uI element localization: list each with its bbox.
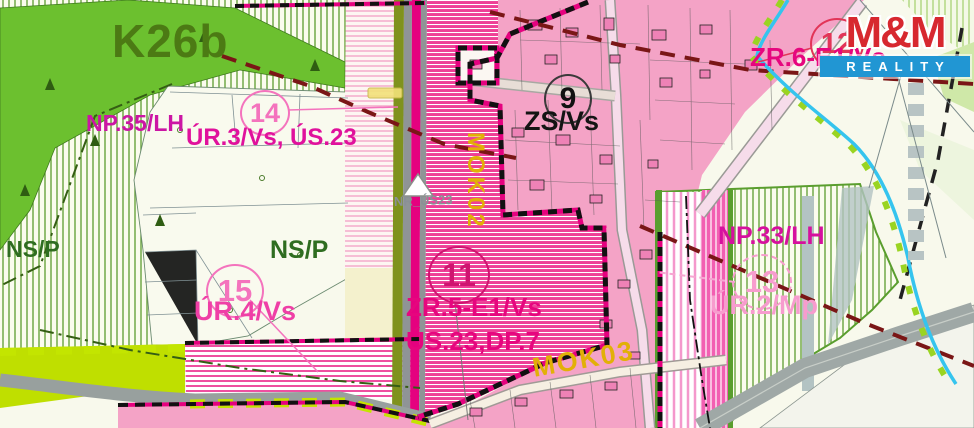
zone-label-np35: NP.35/LH (86, 112, 184, 135)
logo-tagline-bar: REALITY (820, 56, 970, 77)
logo-brand-text: M&M (820, 12, 970, 54)
zone-label-us23dp7: ÚS.23,DP.7 (406, 328, 540, 354)
zone-label-nsp-left: NS/P (6, 238, 60, 261)
zone-label-ur3: ÚR.3/Vs, ÚS.23 (186, 126, 357, 150)
pale-area (345, 266, 396, 345)
marker-label-nr-us23: NR_ÚS23 (394, 193, 453, 208)
zone-label-ur2: ÚR.2/Mp (710, 292, 818, 319)
zone-label-ur4: ÚR.4/Vs (194, 298, 296, 325)
corridor-olive-strip (392, 0, 404, 428)
pink-vert-stripe-band (662, 192, 702, 428)
zone-label-k26b: K26b (112, 18, 228, 64)
street-label-mok02: MOK02 (463, 132, 487, 230)
zone-label-zr5: ZR.5-E1/Vs (406, 294, 542, 320)
zone-label-np33: NP.33/LH (718, 224, 825, 249)
yellow-mark (368, 88, 402, 98)
zone-label-nsp-right: NS/P (270, 238, 328, 263)
zone-label-zsvs: ZS/Vs (524, 108, 599, 135)
zoning-map[interactable]: K26b NP.35/LH 14 ÚR.3/Vs, ÚS.23 NS/P NS/… (0, 0, 974, 428)
mm-reality-logo: M&M REALITY (820, 12, 970, 77)
pink-hatch-band-bottom (185, 338, 428, 400)
